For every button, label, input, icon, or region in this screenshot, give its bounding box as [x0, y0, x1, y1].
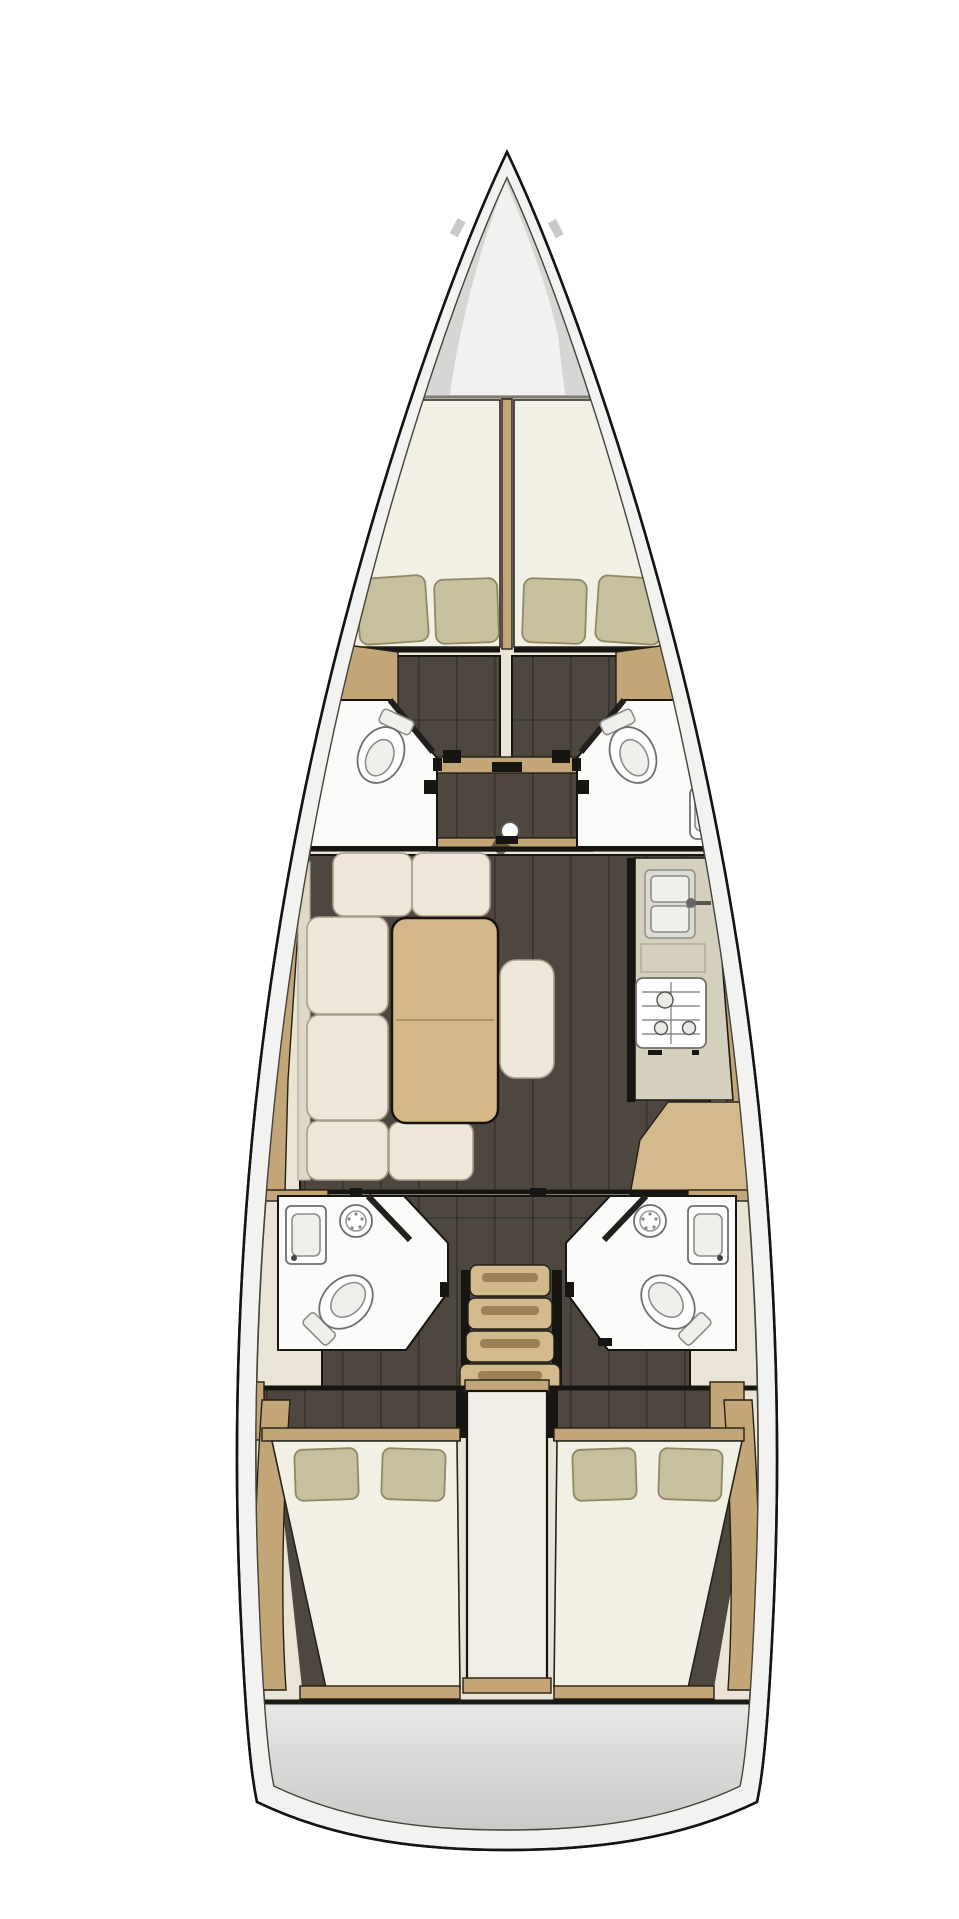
shower-drain — [634, 1205, 666, 1237]
sofa-seat — [333, 853, 412, 916]
step — [470, 1265, 550, 1296]
step — [468, 1298, 552, 1329]
floorplan-canvas — [0, 0, 959, 1919]
stove — [636, 978, 706, 1055]
galley-front-trim — [627, 858, 635, 1102]
pillow — [658, 1448, 723, 1501]
anchor-locker — [415, 165, 599, 397]
shower-sink — [286, 1206, 326, 1264]
sofa-seat — [307, 1121, 388, 1180]
shower-drain — [340, 1205, 372, 1237]
step — [466, 1331, 554, 1362]
burner — [657, 992, 673, 1008]
port-aft-head — [278, 1196, 449, 1351]
door-handle — [565, 1282, 574, 1297]
salon-ottoman — [500, 960, 554, 1078]
berth-center-divider — [502, 399, 512, 649]
sofa-seat — [412, 853, 490, 916]
starboard-chainplate-mark — [548, 219, 564, 238]
sofa-seat — [307, 1015, 388, 1120]
pillow — [381, 1448, 446, 1501]
forward-v-berth — [338, 399, 676, 650]
pillow — [522, 578, 587, 644]
salon-table — [392, 918, 498, 1123]
port-bed-foot-trim — [300, 1686, 460, 1699]
shower-sink — [688, 1206, 728, 1264]
burner — [655, 1022, 668, 1035]
starboard-bed-foot-trim — [554, 1686, 714, 1699]
pillow — [294, 1448, 359, 1501]
yacht-floorplan — [0, 0, 959, 1919]
pillow — [572, 1448, 637, 1501]
starboard-bed-head-trim — [554, 1428, 744, 1441]
port-chainplate-mark — [450, 218, 466, 237]
sofa-seat — [389, 1122, 473, 1180]
pillow — [434, 578, 499, 644]
engine-box — [467, 1391, 547, 1681]
starboard-aft-head — [565, 1196, 736, 1351]
burner — [683, 1022, 696, 1035]
port-bed-head-trim — [262, 1428, 460, 1441]
engine-box-foot-sill — [463, 1678, 551, 1693]
door-handle — [440, 1282, 449, 1297]
sofa-seat — [307, 917, 388, 1014]
companionway-stairs — [460, 1265, 562, 1392]
